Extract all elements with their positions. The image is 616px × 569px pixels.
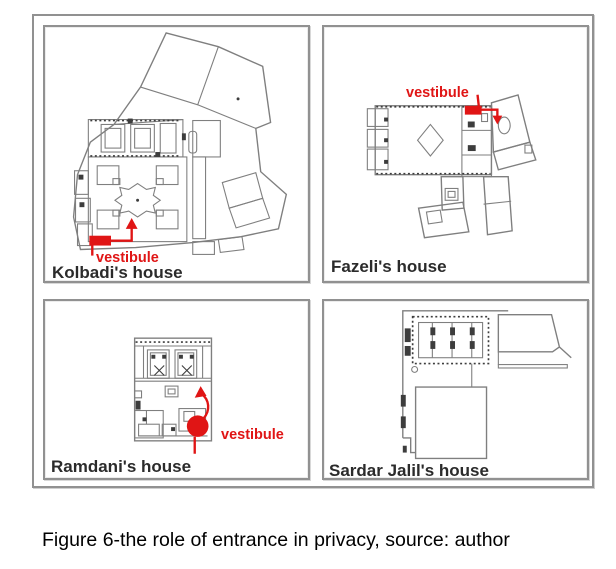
figure-caption: Figure 6-the role of entrance in privacy…	[42, 530, 510, 551]
panel-label: Fazeli's house	[331, 258, 447, 276]
plan-colonnade-dots	[90, 121, 181, 156]
page: { "figure": { "caption": "Figure 6-the r…	[0, 0, 616, 569]
floor-plan-ramdani	[45, 301, 308, 478]
floor-plan-fazeli	[324, 27, 587, 281]
panel-ramdani-house: vestibule Ramdani's house	[43, 299, 310, 480]
vestibule-annotation: vestibule	[221, 428, 284, 443]
floor-plan-sardar-jalil	[324, 301, 587, 478]
floor-plan-kolbadi	[45, 27, 308, 281]
plan-rooms	[75, 47, 270, 255]
plan-colonnade-dots	[413, 317, 489, 364]
panel-label: Ramdani's house	[51, 458, 191, 476]
entrance-arrow	[195, 386, 208, 418]
plan-colonnade-dots	[376, 107, 490, 174]
plan-dark-details	[401, 327, 475, 452]
panel-kolbadi-house: vestibule Kolbadi's house	[43, 25, 310, 283]
panel-sardar-jalil-house: Sardar Jalil's house	[322, 299, 589, 480]
panel-fazeli-house: vestibule Fazeli's house	[322, 25, 589, 283]
vestibule-marker	[187, 415, 209, 452]
plan-outline	[403, 311, 571, 459]
panel-label: Kolbadi's house	[52, 264, 183, 282]
figure-frame: vestibule Kolbadi's house	[32, 14, 594, 488]
panel-label: Sardar Jalil's house	[329, 462, 489, 480]
vestibule-annotation: vestibule	[406, 86, 469, 101]
plan-rooms	[367, 106, 531, 224]
plan-outline	[375, 95, 536, 238]
